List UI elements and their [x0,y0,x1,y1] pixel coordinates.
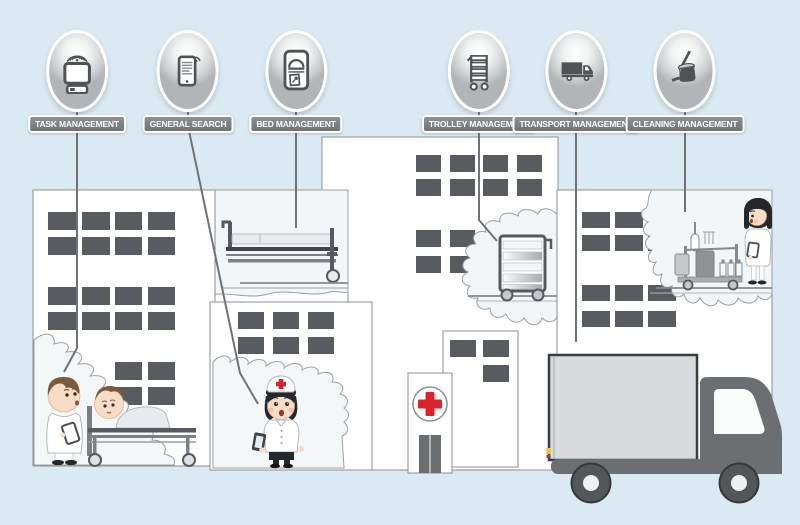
badge-label-cleaning: CLEANING MANAGEMENT [626,115,745,133]
building-middle [210,302,372,470]
general-search-icon [157,30,219,112]
badge-label-task: TASK MANAGEMENT [28,115,126,133]
doctor-figure [47,377,83,465]
badge-bed-management: BED MANAGEMENT [249,30,342,133]
badge-general-search: GENERAL SEARCH [143,30,234,133]
cleaning-management-icon [654,30,716,112]
transport-management-icon [545,30,607,112]
trolley [500,236,551,301]
hospital-management-illustration: TASK MANAGEMENT GENERAL SEARCH BED MAN [0,0,800,525]
badge-cleaning-management: CLEANING MANAGEMENT [626,30,745,133]
trolley-management-icon [448,30,510,112]
badge-task-management: TASK MANAGEMENT [28,30,126,133]
badge-label-transport: TRANSPORT MANAGEMENT [512,115,639,133]
truck [547,355,783,503]
badge-transport-management: TRANSPORT MANAGEMENT [512,30,639,133]
truck-cargo-box [549,355,697,460]
task-management-icon [46,30,108,112]
entrance-door-left [419,435,430,473]
building-left [33,190,215,466]
badge-label-search: GENERAL SEARCH [143,115,234,133]
entrance-door-right [431,435,442,473]
bed-management-icon [265,30,327,112]
badge-label-bed: BED MANAGEMENT [249,115,342,133]
